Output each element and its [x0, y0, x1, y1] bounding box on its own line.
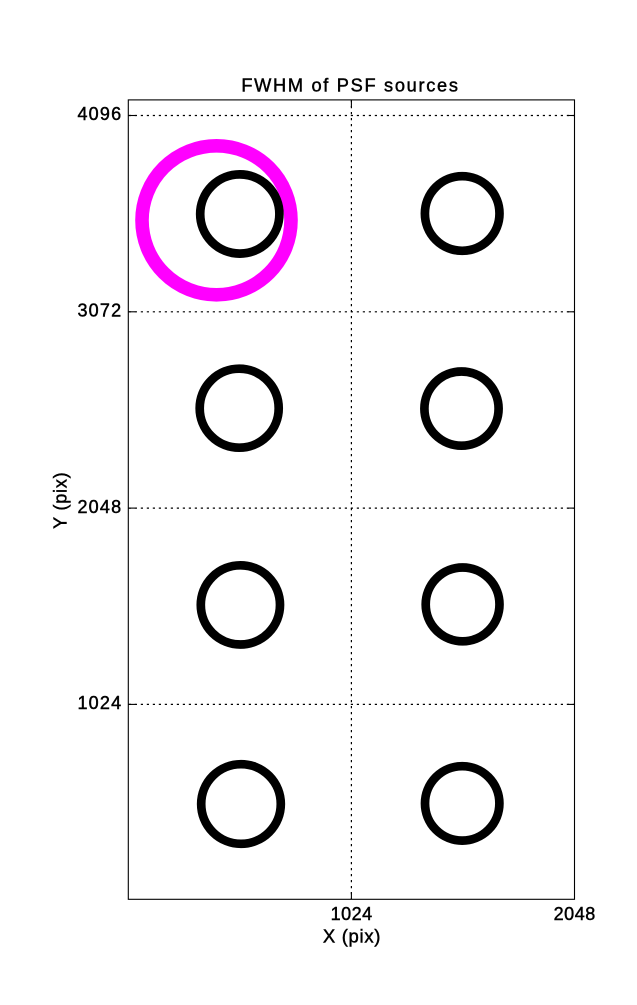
svg-text:1024: 1024	[77, 693, 122, 713]
svg-text:FWHM of PSF sources: FWHM of PSF sources	[241, 75, 459, 95]
svg-text:1024: 1024	[331, 904, 373, 924]
svg-text:X (pix): X (pix)	[323, 926, 381, 947]
svg-text:4096: 4096	[77, 104, 122, 124]
svg-text:3072: 3072	[77, 301, 122, 321]
svg-text:2048: 2048	[77, 497, 122, 517]
svg-text:2048: 2048	[554, 904, 596, 924]
svg-text:Y (pix): Y (pix)	[51, 472, 71, 529]
